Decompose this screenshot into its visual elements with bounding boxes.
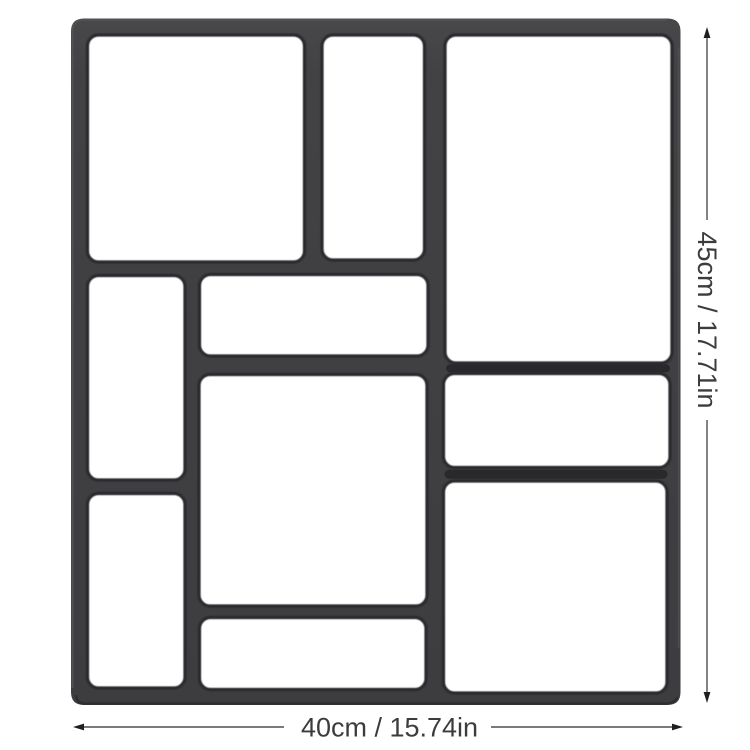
svg-text:40cm / 15.74in: 40cm / 15.74in <box>301 713 478 743</box>
svg-text:45cm / 17.71in: 45cm / 17.71in <box>692 231 722 408</box>
